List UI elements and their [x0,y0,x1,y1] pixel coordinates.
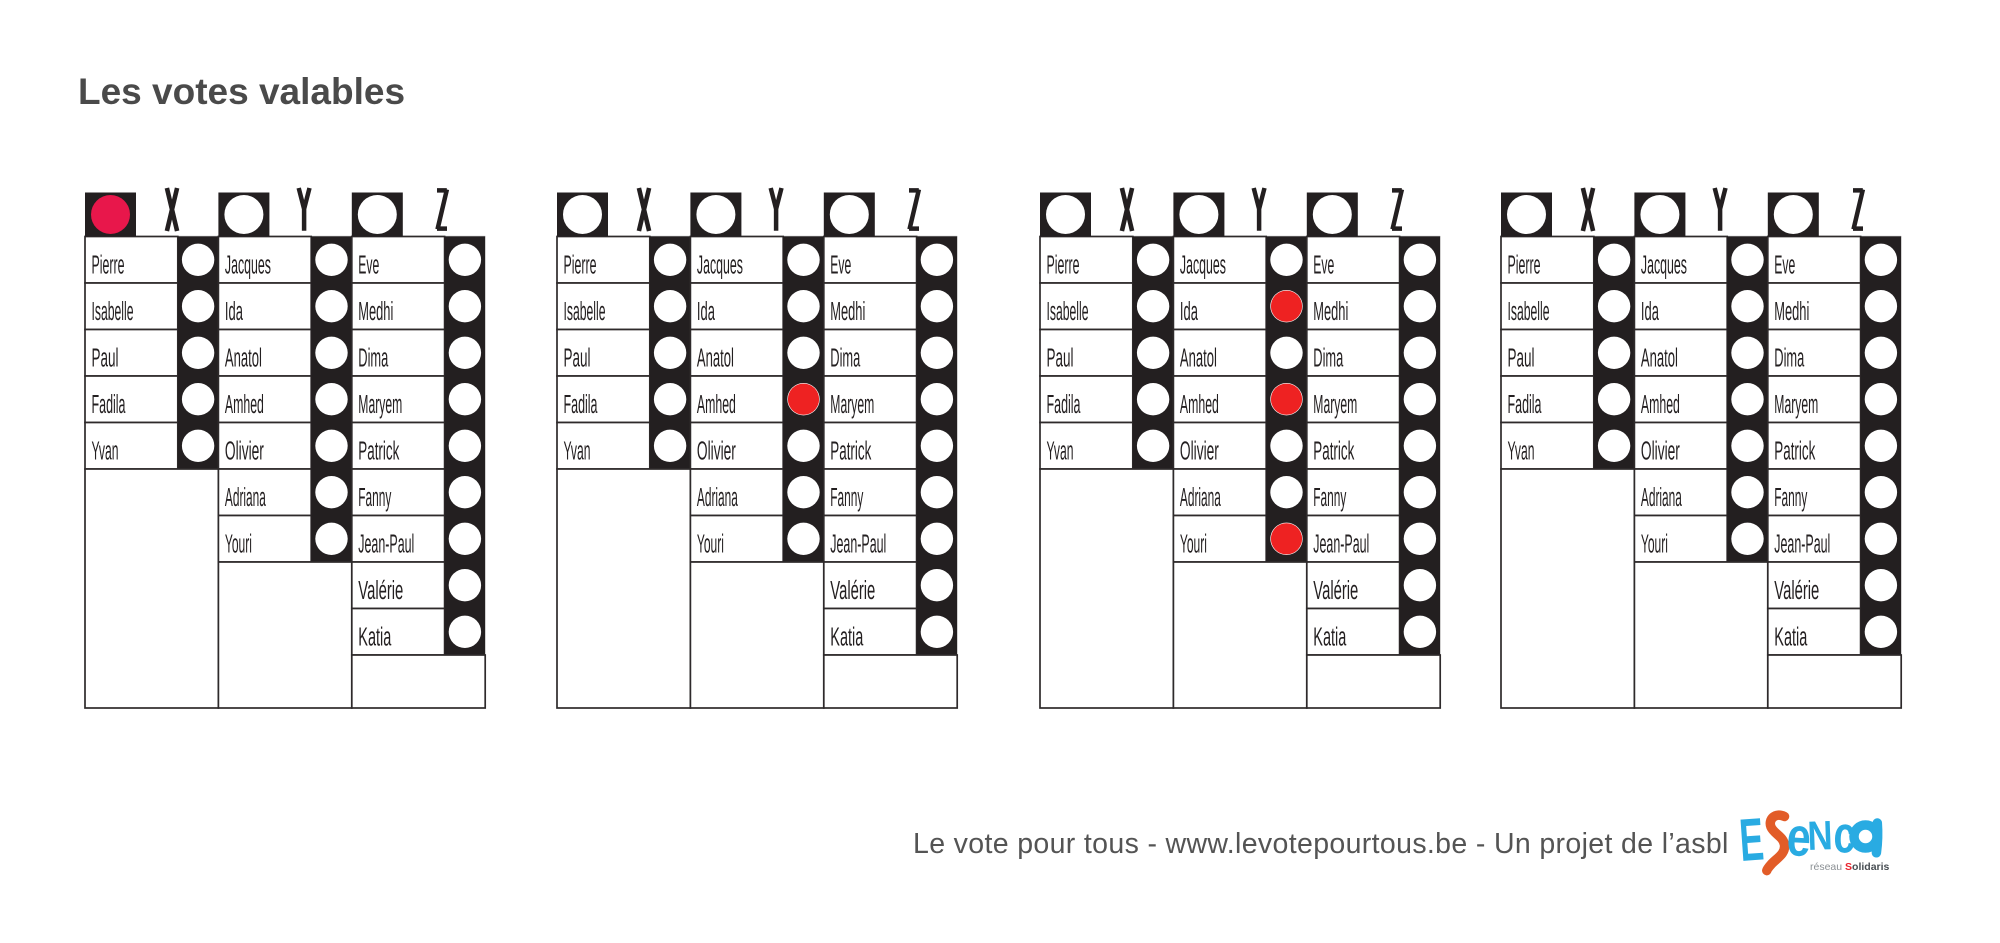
svg-text:Anatol: Anatol [225,345,262,373]
svg-text:Dima: Dima [358,345,388,373]
svg-text:Le vote pour tous - www.levote: Le vote pour tous - www.levotepourtous.b… [913,828,1729,860]
svg-text:Youri: Youri [1641,531,1668,559]
svg-text:Adriana: Adriana [1180,484,1221,512]
svg-text:Medhi: Medhi [1774,298,1809,326]
svg-text:Isabelle: Isabelle [1047,298,1089,326]
svg-text:Katia: Katia [1774,624,1807,652]
svg-text:Pierre: Pierre [92,252,125,280]
svg-text:Fanny: Fanny [1774,484,1807,512]
svg-text:Yvan: Yvan [1047,438,1074,466]
svg-text:Les votes valables: Les votes valables [78,71,405,112]
svg-text:Jacques: Jacques [225,252,271,280]
svg-text:Jean-Paul: Jean-Paul [358,531,414,559]
svg-text:Dima: Dima [1774,345,1804,373]
svg-text:Anatol: Anatol [1641,345,1678,373]
svg-text:Pierre: Pierre [1047,252,1080,280]
svg-text:Jean-Paul: Jean-Paul [1774,531,1830,559]
svg-text:Fadila: Fadila [92,391,126,419]
svg-text:Valérie: Valérie [1774,577,1819,605]
svg-text:Eve: Eve [1313,252,1334,280]
svg-text:Ida: Ida [1641,298,1659,326]
svg-text:N: N [1807,812,1834,859]
svg-text:Patrick: Patrick [358,438,399,466]
svg-text:Jacques: Jacques [1641,252,1687,280]
svg-text:Fadila: Fadila [1047,391,1081,419]
svg-text:Olivier: Olivier [697,438,736,466]
svg-text:Olivier: Olivier [225,438,264,466]
svg-text:Pierre: Pierre [564,252,597,280]
svg-text:Patrick: Patrick [830,438,871,466]
svg-text:Amhed: Amhed [697,391,736,419]
svg-text:Adriana: Adriana [225,484,266,512]
svg-text:Ida: Ida [225,298,243,326]
svg-text:Jacques: Jacques [1180,252,1226,280]
svg-text:Patrick: Patrick [1774,438,1815,466]
svg-text:Adriana: Adriana [1641,484,1682,512]
svg-text:Isabelle: Isabelle [564,298,606,326]
svg-text:Valérie: Valérie [1313,577,1358,605]
svg-text:Medhi: Medhi [830,298,865,326]
svg-text:Eve: Eve [1774,252,1795,280]
svg-text:Amhed: Amhed [1180,391,1219,419]
svg-text:Fadila: Fadila [1508,391,1542,419]
svg-text:Valérie: Valérie [358,577,403,605]
svg-text:Fanny: Fanny [830,484,863,512]
svg-text:Amhed: Amhed [1641,391,1680,419]
svg-text:Katia: Katia [1313,624,1346,652]
svg-text:Ida: Ida [697,298,715,326]
svg-text:Fadila: Fadila [564,391,598,419]
svg-text:Fanny: Fanny [1313,484,1346,512]
svg-text:Adriana: Adriana [697,484,738,512]
svg-text:Youri: Youri [697,531,724,559]
svg-text:Paul: Paul [92,345,119,373]
svg-text:Paul: Paul [1047,345,1074,373]
svg-text:Eve: Eve [830,252,851,280]
svg-text:Katia: Katia [830,624,863,652]
svg-text:Amhed: Amhed [225,391,264,419]
svg-text:Youri: Youri [1180,531,1207,559]
svg-text:Eve: Eve [358,252,379,280]
svg-text:Pierre: Pierre [1508,252,1541,280]
svg-text:Medhi: Medhi [358,298,393,326]
svg-text:Dima: Dima [1313,345,1343,373]
svg-text:Jacques: Jacques [697,252,743,280]
svg-text:Dima: Dima [830,345,860,373]
svg-text:Olivier: Olivier [1180,438,1219,466]
svg-text:Medhi: Medhi [1313,298,1348,326]
svg-text:Jean-Paul: Jean-Paul [1313,531,1369,559]
svg-text:Ida: Ida [1180,298,1198,326]
svg-text:Anatol: Anatol [1180,345,1217,373]
svg-text:Maryem: Maryem [830,391,874,419]
svg-text:E: E [1737,805,1766,874]
svg-text:réseau Solidaris: réseau Solidaris [1810,861,1890,873]
svg-text:Yvan: Yvan [1508,438,1535,466]
svg-text:Fanny: Fanny [358,484,391,512]
svg-text:Olivier: Olivier [1641,438,1680,466]
svg-text:Isabelle: Isabelle [1508,298,1550,326]
svg-text:Youri: Youri [225,531,252,559]
svg-text:Patrick: Patrick [1313,438,1354,466]
svg-text:Yvan: Yvan [92,438,119,466]
svg-text:Maryem: Maryem [358,391,402,419]
svg-text:Yvan: Yvan [564,438,591,466]
svg-text:Paul: Paul [1508,345,1535,373]
svg-text:Maryem: Maryem [1774,391,1818,419]
svg-text:Anatol: Anatol [697,345,734,373]
svg-text:Paul: Paul [564,345,591,373]
svg-text:Maryem: Maryem [1313,391,1357,419]
svg-text:Isabelle: Isabelle [92,298,134,326]
svg-text:Valérie: Valérie [830,577,875,605]
svg-text:Katia: Katia [358,624,391,652]
svg-text:Jean-Paul: Jean-Paul [830,531,886,559]
